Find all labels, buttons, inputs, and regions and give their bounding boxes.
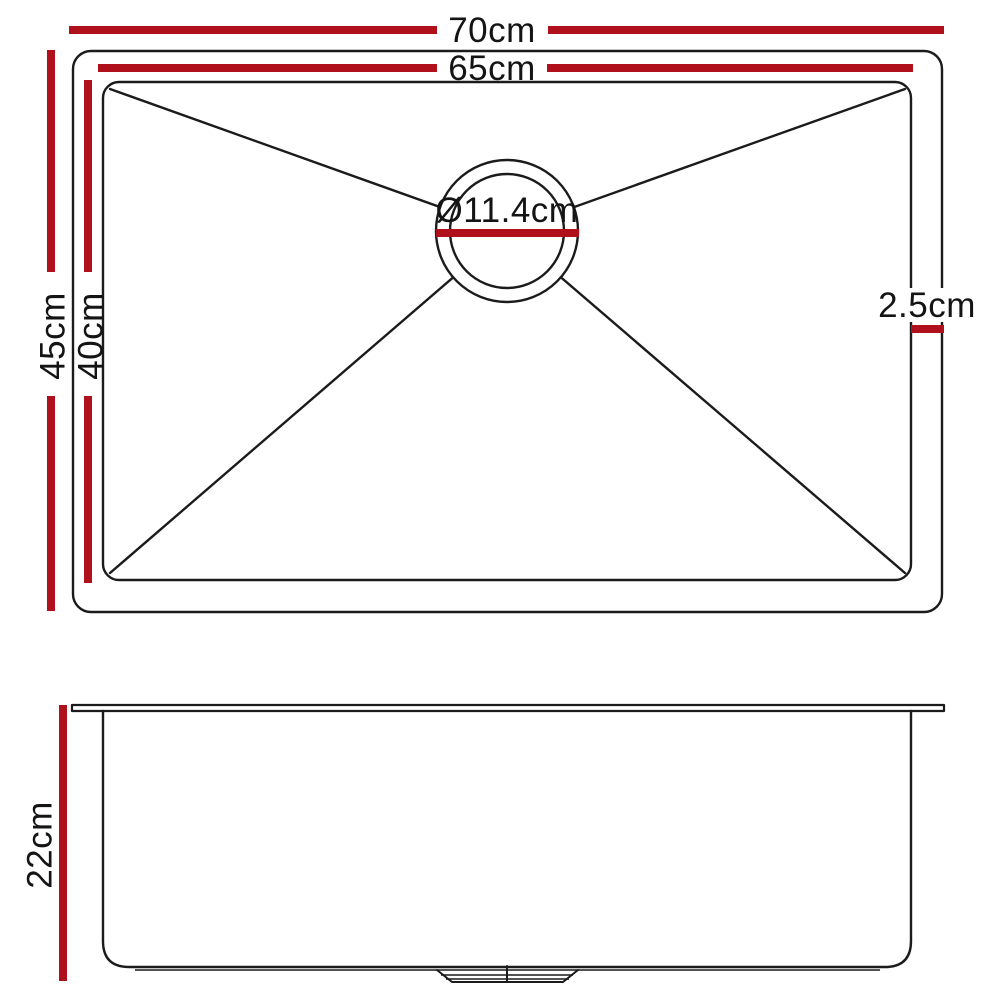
top-view-bowl-outline (103, 82, 911, 580)
dim-label-drain-diameter: Ø11.4cm (436, 191, 579, 230)
dim-label-outer-depth: 45cm (34, 292, 73, 380)
diagram-svg: 70cm 65cm 45cm 40cm Ø11.4cm 2.5cm 22 (0, 0, 1000, 1000)
top-view-outer-rim-outline (73, 51, 942, 612)
side-view-bowl-profile (103, 711, 911, 967)
top-view: 70cm 65cm 45cm 40cm Ø11.4cm 2.5cm (34, 11, 976, 612)
dim-label-bowl-height: 22cm (21, 801, 60, 889)
dim-label-rim-width: 2.5cm (878, 286, 976, 325)
dim-label-inner-depth: 40cm (72, 292, 111, 380)
corner-diagonal-bottom-left (110, 231, 507, 573)
dim-label-outer-width: 70cm (448, 11, 536, 50)
sink-dimension-diagram: 70cm 65cm 45cm 40cm Ø11.4cm 2.5cm 22 (0, 0, 1000, 1000)
side-view-rim (72, 705, 944, 711)
dim-label-inner-width: 65cm (448, 49, 536, 88)
corner-diagonal-bottom-right (507, 231, 905, 573)
side-view: 22cm (21, 705, 945, 982)
